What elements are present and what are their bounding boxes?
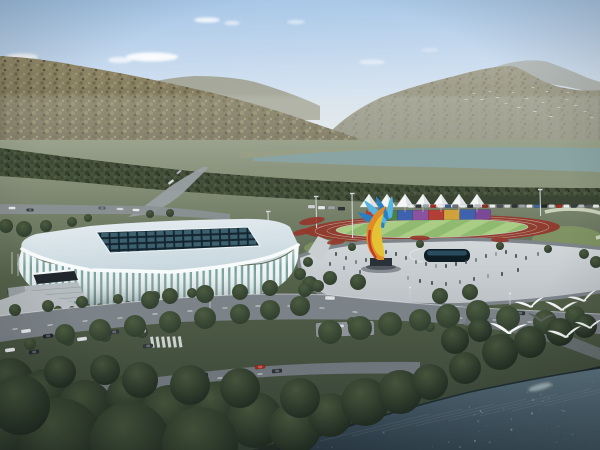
rendering-image [0, 0, 600, 450]
vignette [0, 0, 600, 450]
scene-canvas [0, 0, 600, 450]
